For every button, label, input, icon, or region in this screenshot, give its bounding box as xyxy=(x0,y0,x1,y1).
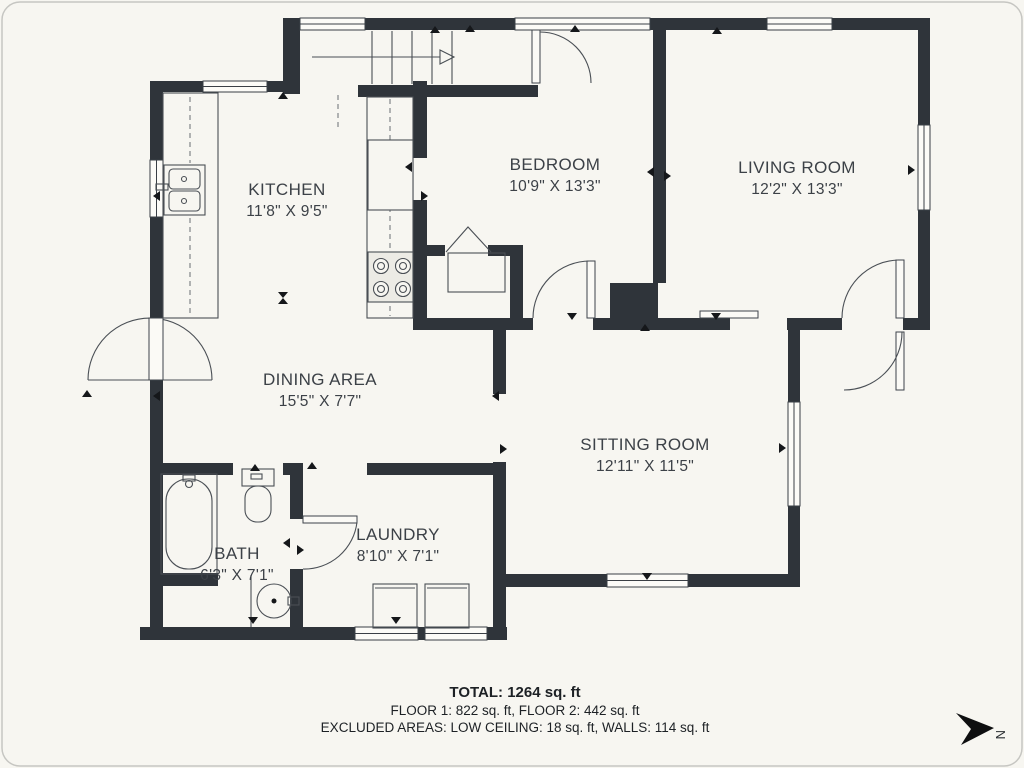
laundry-fixtures xyxy=(373,584,469,628)
room-label-bedroom: BEDROOM 10'9" X 13'3" xyxy=(509,154,601,198)
floor-areas-text: FLOOR 1: 822 sq. ft, FLOOR 2: 442 sq. ft xyxy=(321,702,710,719)
bedroom-door xyxy=(533,261,595,318)
living-room-exterior-door xyxy=(842,260,904,390)
refrigerator xyxy=(368,140,413,210)
room-dims: 11'8" X 9'5" xyxy=(246,201,327,223)
stair-door xyxy=(532,30,591,83)
room-label-laundry: LAUNDRY 8'10" X 7'1" xyxy=(356,524,440,568)
room-name: LIVING ROOM xyxy=(738,157,856,179)
dryer xyxy=(425,584,469,628)
room-dims: 8'10" X 7'1" xyxy=(356,546,440,568)
staircase xyxy=(312,31,454,127)
room-name: BATH xyxy=(200,543,274,565)
stove xyxy=(368,252,413,302)
sliding-door xyxy=(700,311,758,318)
room-name: LAUNDRY xyxy=(356,524,440,546)
room-dims: 15'5" X 7'7" xyxy=(263,391,377,413)
room-label-bath: BATH 6'3" X 7'1" xyxy=(200,543,274,587)
compass-north-label: N xyxy=(993,730,1008,739)
laundry-door xyxy=(303,516,357,569)
compass-north-indicator: N xyxy=(956,713,1008,745)
room-dims: 12'11" X 11'5" xyxy=(580,456,709,478)
room-dims: 10'9" X 13'3" xyxy=(509,176,601,198)
room-label-living-room: LIVING ROOM 12'2" X 13'3" xyxy=(738,157,856,201)
area-summary: TOTAL: 1264 sq. ft FLOOR 1: 822 sq. ft, … xyxy=(321,684,710,736)
toilet xyxy=(242,469,274,522)
bedroom-closet xyxy=(446,227,505,292)
floorplan-canvas: N KITCHEN 11'8" X 9'5" BEDROOM 10'9" X 1… xyxy=(0,0,1024,768)
room-dims: 12'2" X 13'3" xyxy=(738,179,856,201)
room-dims: 6'3" X 7'1" xyxy=(200,565,274,587)
excluded-areas-text: EXCLUDED AREAS: LOW CEILING: 18 sq. ft, … xyxy=(321,719,710,736)
room-name: DINING AREA xyxy=(263,369,377,391)
entry-door xyxy=(88,318,212,380)
total-area-text: TOTAL: 1264 sq. ft xyxy=(321,684,710,702)
room-label-kitchen: KITCHEN 11'8" X 9'5" xyxy=(246,179,327,223)
closet-door-chevron xyxy=(446,227,491,252)
room-label-sitting-room: SITTING ROOM 12'11" X 11'5" xyxy=(580,434,709,478)
room-label-dining-area: DINING AREA 15'5" X 7'7" xyxy=(263,369,377,413)
compass-arrow-icon xyxy=(956,713,994,745)
floorplan-drawing: N xyxy=(0,0,1024,768)
room-name: BEDROOM xyxy=(509,154,601,176)
room-name: SITTING ROOM xyxy=(580,434,709,456)
room-name: KITCHEN xyxy=(246,179,327,201)
